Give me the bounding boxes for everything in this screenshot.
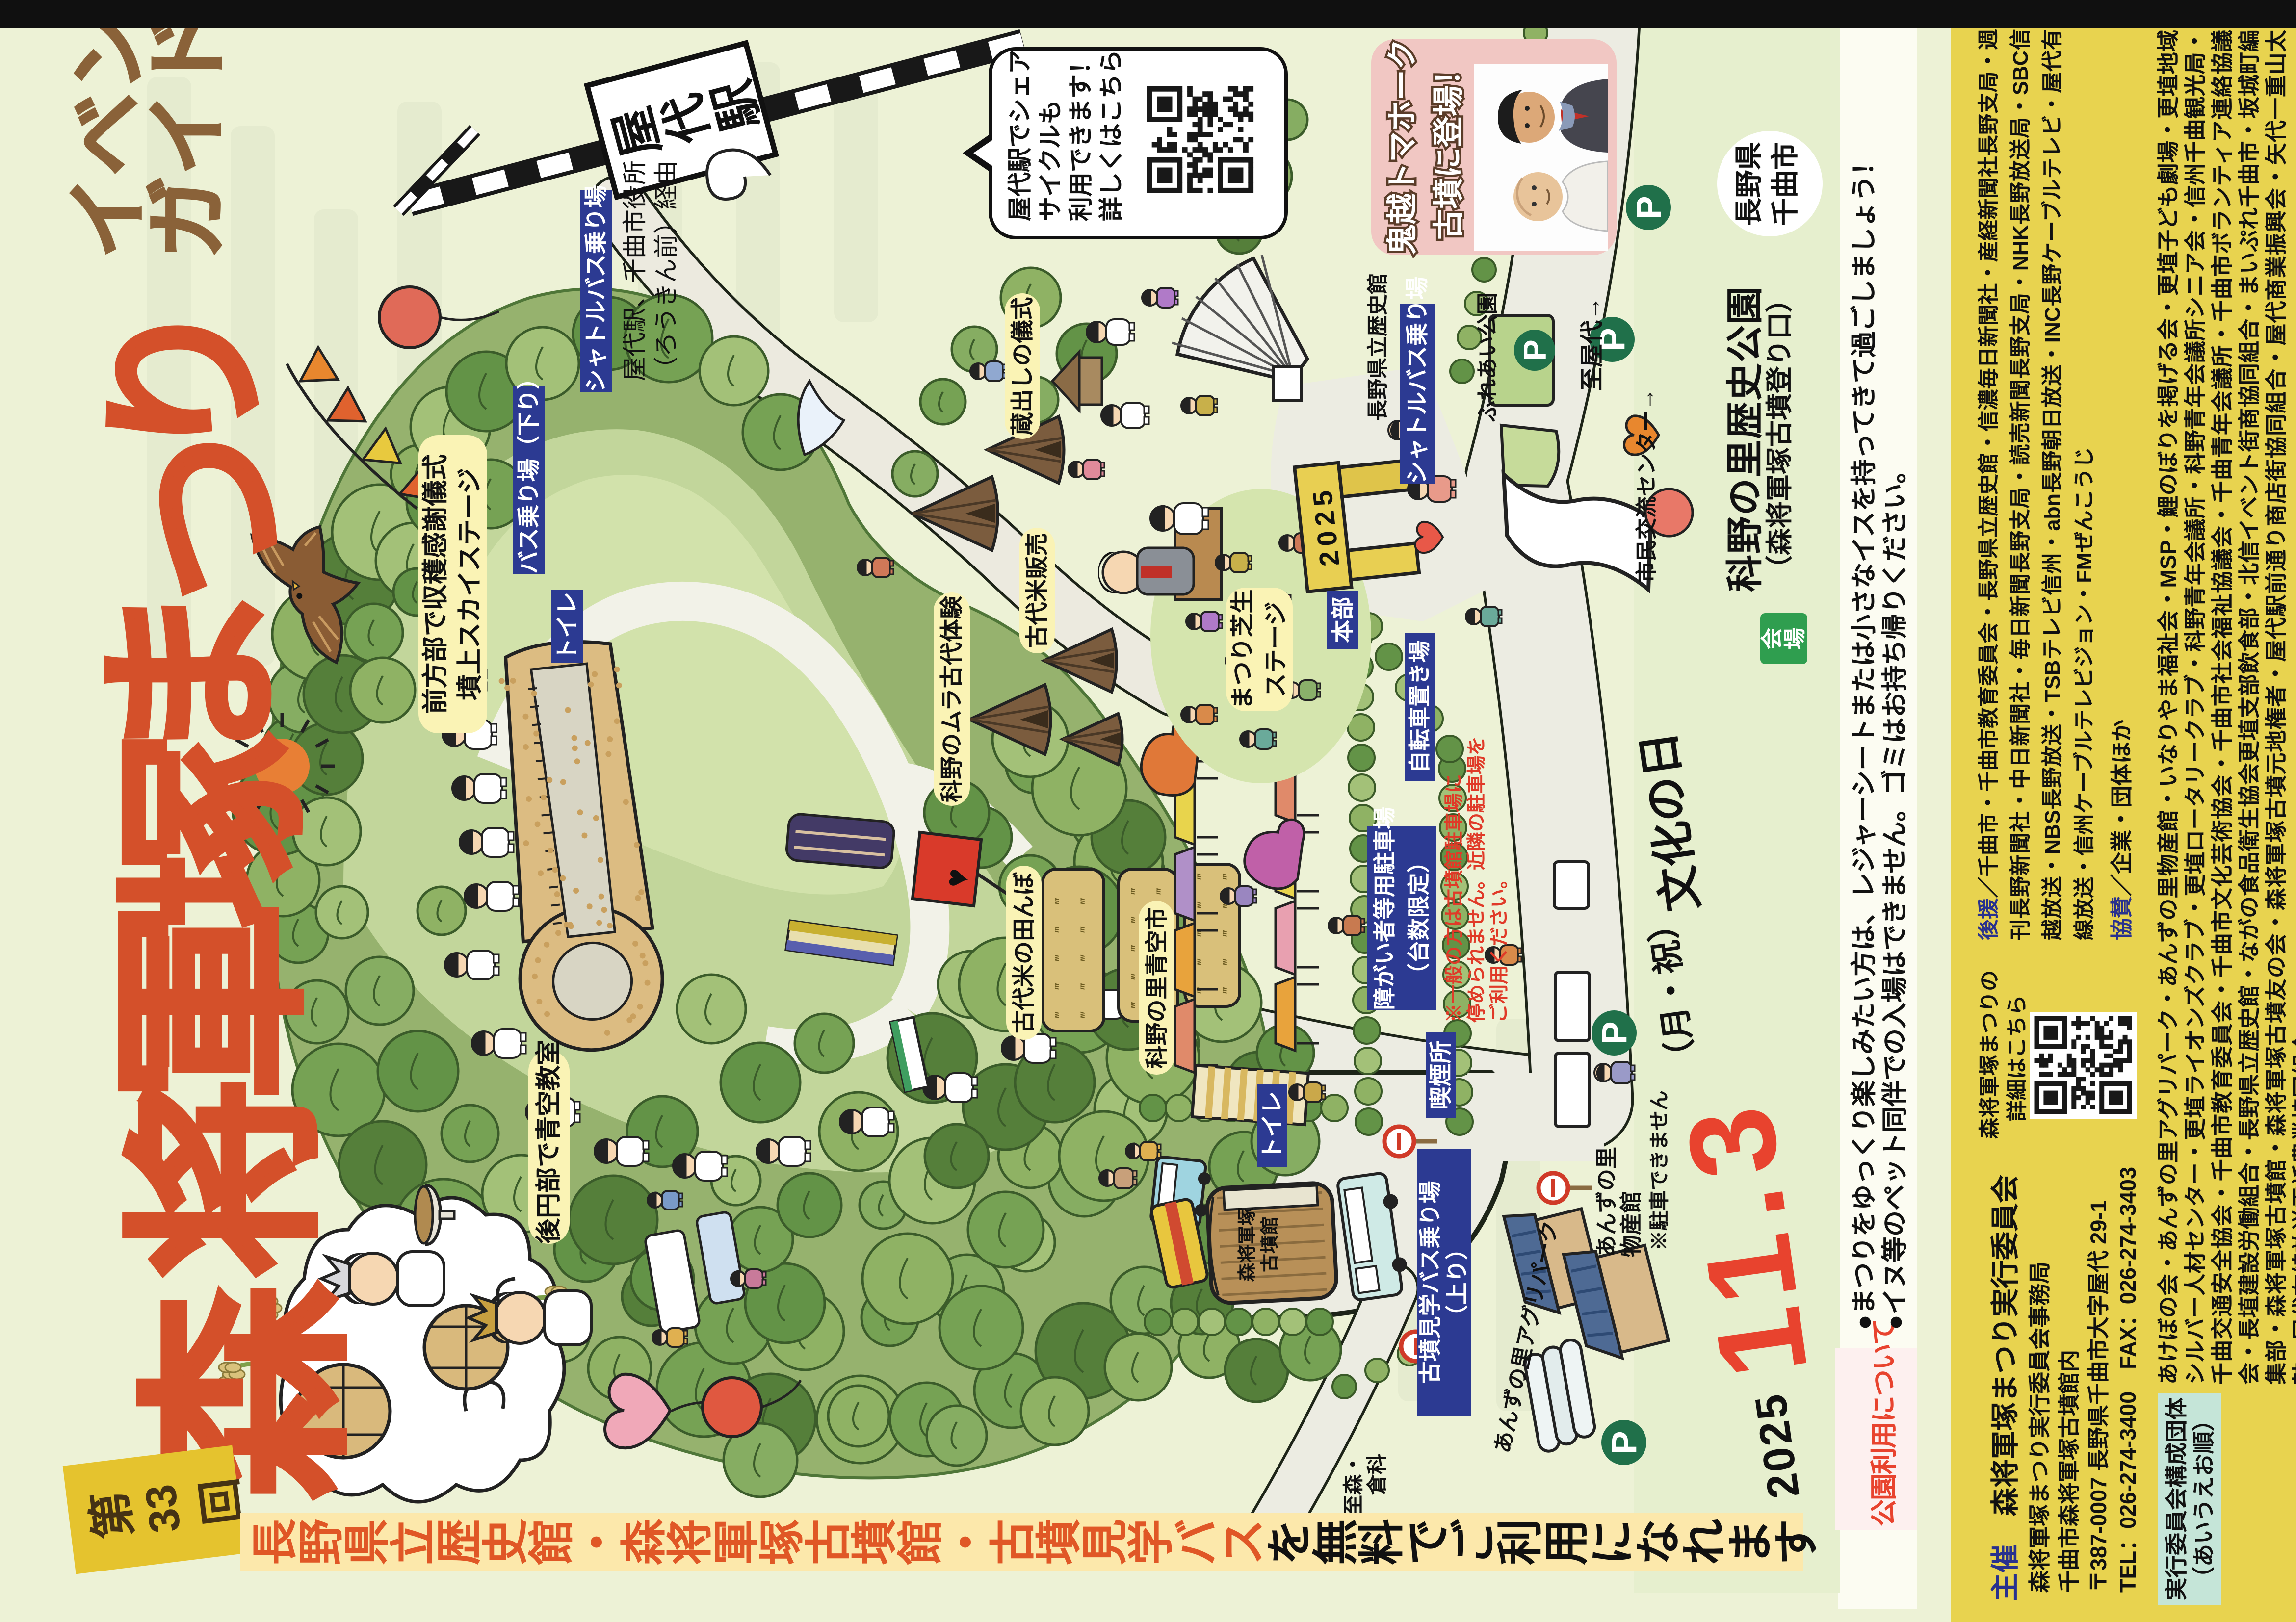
svg-text:‴: ‴ [1052, 1011, 1070, 1018]
svg-text:‴: ‴ [1077, 983, 1095, 990]
svg-text:‴: ‴ [1077, 926, 1095, 933]
svg-text:‴: ‴ [1220, 987, 1237, 994]
svg-text:P: P [1630, 196, 1669, 219]
svg-text:‴: ‴ [1220, 958, 1237, 965]
svg-text:‴: ‴ [1077, 954, 1095, 961]
svg-text:‴: ‴ [1194, 901, 1212, 908]
svg-text:‴: ‴ [1153, 888, 1171, 895]
svg-text:P: P [1517, 339, 1553, 360]
svg-text:‴: ‴ [1194, 958, 1212, 965]
svg-text:P: P [1605, 1431, 1644, 1454]
svg-text:‴: ‴ [1052, 926, 1070, 933]
svg-text:‴: ‴ [1052, 954, 1070, 961]
svg-text:‴: ‴ [1077, 898, 1095, 904]
svg-text:‴: ‴ [1052, 983, 1070, 990]
svg-text:‴: ‴ [1128, 888, 1146, 895]
svg-text:‴: ‴ [1194, 873, 1212, 880]
svg-text:P: P [1595, 1021, 1634, 1044]
svg-text:‴: ‴ [1077, 1011, 1095, 1018]
svg-text:‴: ‴ [1220, 930, 1237, 937]
svg-text:‴: ‴ [1052, 898, 1070, 904]
svg-text:‴: ‴ [1220, 873, 1237, 880]
